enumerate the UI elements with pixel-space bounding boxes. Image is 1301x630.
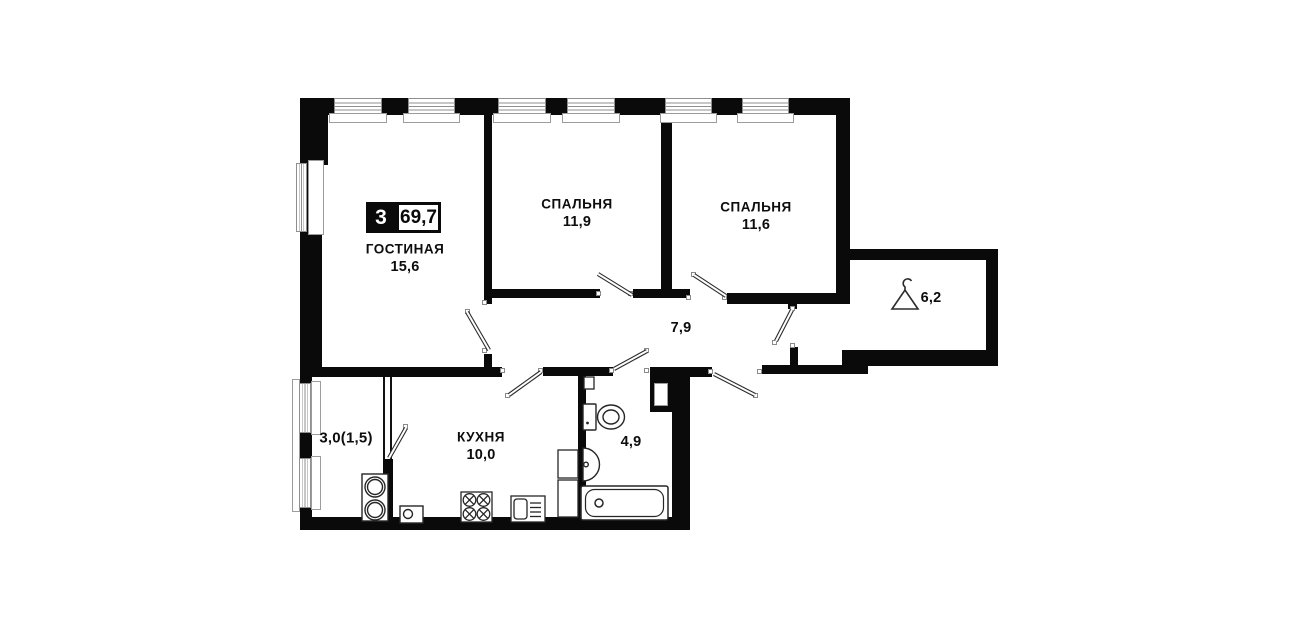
bedroom2-label: СПАЛЬНЯ (720, 200, 792, 215)
door-jamb (482, 348, 487, 353)
door-jamb (596, 291, 601, 296)
rooms-count-badge: 3 (366, 202, 396, 233)
door-jamb (772, 340, 777, 345)
door-jamb (644, 348, 649, 353)
door-jamb (505, 393, 510, 398)
kitchen-label: КУХНЯ (457, 430, 505, 445)
wall-left-corner (300, 98, 328, 165)
wall-bedroom2-bottom (727, 293, 850, 304)
balcony-area: 3,0(1,5) (319, 430, 372, 447)
door-jamb (686, 295, 691, 300)
wall-kitchen-top (543, 367, 613, 376)
bedroom1-area: 11,9 (563, 214, 591, 230)
window-sill (403, 113, 460, 123)
window-sill (737, 113, 794, 123)
window-sill (329, 113, 387, 123)
wall-bottom (300, 517, 690, 530)
vent-shaft-inset (654, 383, 668, 406)
window-sill (308, 160, 324, 235)
hanger-icon (892, 279, 918, 309)
wall-hall-stub (790, 347, 798, 367)
floorplan-canvas: 3 69,7 ГОСТИНАЯ 15,6 СПАЛЬНЯ 11,9 СПАЛЬН… (0, 0, 1301, 630)
door-jamb (609, 368, 614, 373)
wall-bedroom1-bottom (484, 289, 600, 298)
door-jamb (722, 295, 727, 300)
window-sill (311, 456, 321, 510)
cabinet-shaft-icon (558, 377, 594, 517)
door-jamb (403, 424, 408, 429)
wall-hall-bottom (762, 365, 850, 374)
window-balcony-1 (299, 383, 311, 433)
wall-living-bottom (300, 367, 502, 377)
door-jamb (644, 368, 649, 373)
door-jamb (757, 369, 762, 374)
door-jamb (790, 343, 795, 348)
toilet-icon (583, 404, 625, 430)
window-sill (311, 381, 321, 435)
wall-bathroom-top (650, 367, 712, 377)
bathtub-icon (581, 486, 668, 520)
window-sill (660, 113, 717, 123)
balcony-glazed-partition (383, 377, 392, 459)
wall-balcony-partition-bottom (383, 459, 393, 517)
fixtures-overlay (0, 0, 1301, 630)
door-jamb (482, 300, 487, 305)
door-jamb (465, 309, 470, 314)
bedroom2-area: 11,6 (742, 217, 770, 233)
bedroom1-label: СПАЛЬНЯ (541, 197, 613, 212)
wall-bedroom1-bedroom2-divider (661, 115, 672, 290)
bathroom-area: 4,9 (621, 434, 642, 450)
living-room-label: ГОСТИНАЯ (366, 242, 445, 257)
door-jamb (708, 369, 713, 374)
wall-kitchen-bathroom-divider (578, 376, 586, 517)
wall-bathroom-right (672, 367, 690, 530)
door-jamb (790, 306, 795, 311)
living-room-area: 15,6 (390, 259, 419, 275)
wall-living-bedroom1-divider (484, 115, 492, 304)
door-jamb (691, 272, 696, 277)
wall-corridor-top (836, 249, 998, 260)
door-jamb (628, 291, 633, 296)
door-jamb (753, 393, 758, 398)
window-balcony-2 (299, 458, 311, 508)
hallway-area: 7,9 (671, 320, 692, 336)
door-jamb (538, 368, 543, 373)
wall-bedroom2-right (836, 98, 850, 304)
door-jamb (500, 368, 505, 373)
kitchen-area: 10,0 (466, 447, 495, 463)
window-living-left (296, 163, 307, 232)
entry-area: 6,2 (921, 290, 942, 306)
total-area-badge: 69,7 (396, 202, 441, 233)
window-sill (562, 113, 620, 123)
window-sill (493, 113, 551, 123)
wall-living-door-stub (484, 354, 492, 367)
wall-corridor-right (986, 249, 998, 366)
wall-divider-foot (633, 289, 690, 298)
